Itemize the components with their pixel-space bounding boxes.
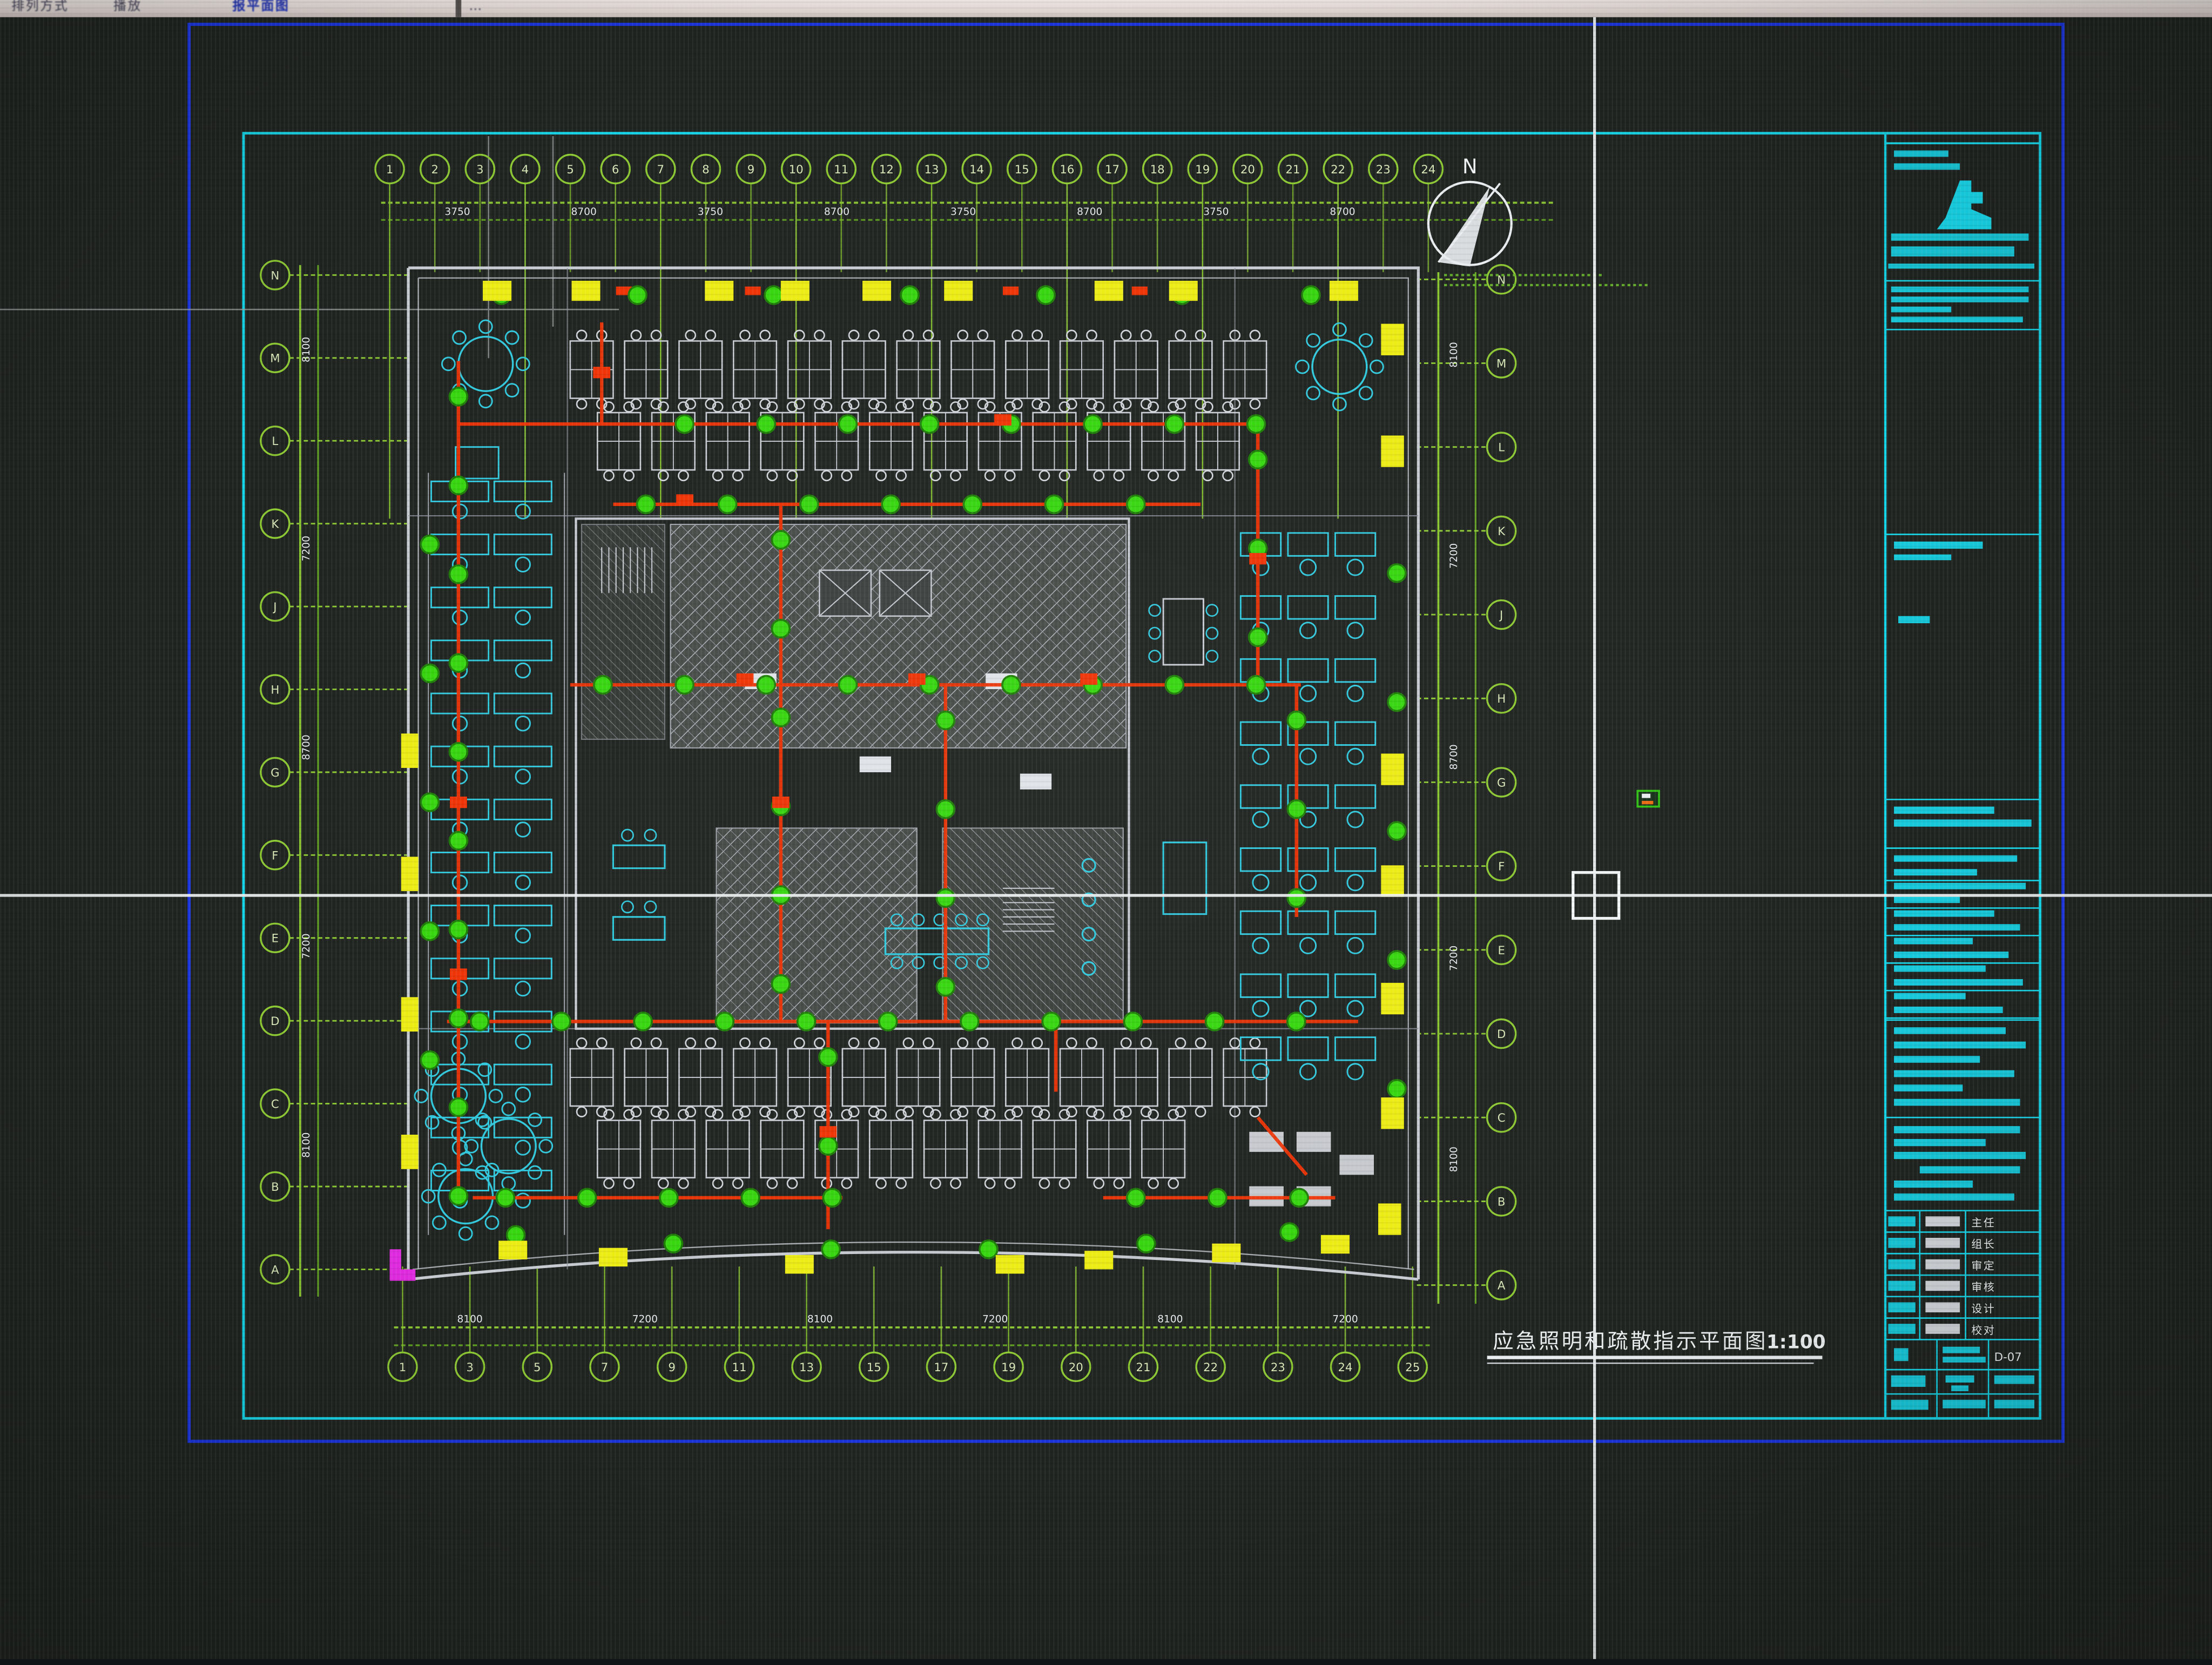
svg-text:5: 5 [567, 163, 574, 177]
svg-text:D: D [271, 1015, 279, 1028]
toolbar-item-play[interactable]: 播放 [113, 0, 142, 16]
svg-text:9: 9 [747, 163, 755, 177]
svg-text:7: 7 [601, 1361, 609, 1374]
svg-text:8100: 8100 [1157, 1314, 1183, 1325]
svg-text:8100: 8100 [1448, 1147, 1460, 1172]
svg-text:22: 22 [1203, 1361, 1218, 1374]
signature-role-label: 校对 [1971, 1324, 1995, 1337]
floating-block-symbol [1637, 791, 1659, 806]
svg-text:3750: 3750 [950, 206, 976, 218]
svg-text:14: 14 [969, 163, 984, 177]
drawing-title-text: 应急照明和疏散指示平面图 [1493, 1329, 1768, 1353]
svg-text:N: N [271, 269, 279, 282]
svg-text:7200: 7200 [1448, 543, 1460, 569]
signature-role-label: 设计 [1971, 1303, 1995, 1315]
svg-text:8: 8 [702, 163, 710, 177]
svg-text:23: 23 [1376, 163, 1391, 177]
svg-text:9: 9 [668, 1361, 676, 1374]
svg-text:8100: 8100 [301, 337, 312, 362]
svg-text:7200: 7200 [1332, 1314, 1358, 1325]
svg-text:B: B [271, 1181, 279, 1194]
drawing-title: 应急照明和疏散指示平面图 1:100 [1487, 1329, 1826, 1363]
svg-text:A: A [1498, 1279, 1506, 1293]
north-label: N [1462, 155, 1478, 178]
svg-text:4: 4 [522, 163, 529, 177]
window-edge-notch [456, 0, 462, 17]
svg-text:5: 5 [534, 1361, 541, 1374]
svg-text:3: 3 [466, 1361, 474, 1374]
svg-text:24: 24 [1338, 1361, 1353, 1374]
toolbar-selected-file[interactable]: 报平面图 [232, 0, 289, 16]
toolbar-item-arrange[interactable]: 排列方式 [11, 0, 69, 16]
svg-text:24: 24 [1421, 163, 1435, 177]
svg-text:H: H [1497, 692, 1506, 706]
svg-text:B: B [1498, 1195, 1506, 1209]
svg-text:7: 7 [657, 163, 665, 177]
title-block: 主任组长审定审核设计校对D-07 [1885, 143, 2040, 1418]
svg-text:8700: 8700 [824, 206, 849, 218]
svg-text:8100: 8100 [1448, 342, 1460, 367]
floor-plan-drawing: 1234567891011121314151617181920212223243… [0, 17, 2212, 1659]
signature-role-label: 主任 [1971, 1217, 1995, 1229]
signature-role-label: 审定 [1971, 1259, 1995, 1272]
svg-text:11: 11 [834, 163, 848, 177]
svg-text:6: 6 [612, 163, 619, 177]
svg-text:8700: 8700 [1330, 206, 1355, 218]
svg-text:12: 12 [879, 163, 894, 177]
svg-text:3: 3 [476, 163, 484, 177]
svg-text:E: E [272, 932, 279, 946]
svg-text:8700: 8700 [1077, 206, 1102, 218]
cad-application-screen: 排列方式 播放 报平面图 … [0, 0, 2212, 1659]
svg-text:3750: 3750 [698, 206, 723, 218]
svg-text:23: 23 [1271, 1361, 1285, 1374]
svg-text:G: G [271, 766, 279, 780]
svg-text:7200: 7200 [301, 933, 312, 959]
crosshair-pickbox[interactable] [1571, 871, 1620, 920]
svg-text:25: 25 [1405, 1361, 1420, 1374]
svg-text:C: C [1498, 1111, 1506, 1125]
svg-text:8100: 8100 [301, 1133, 312, 1158]
svg-text:M: M [1496, 357, 1506, 370]
svg-text:H: H [271, 683, 279, 697]
svg-text:20: 20 [1240, 163, 1255, 177]
svg-text:8100: 8100 [457, 1314, 483, 1325]
svg-text:K: K [271, 518, 279, 531]
svg-text:15: 15 [867, 1361, 881, 1374]
svg-text:F: F [1498, 860, 1505, 874]
svg-text:3750: 3750 [444, 206, 470, 218]
svg-text:7200: 7200 [982, 1314, 1008, 1325]
svg-text:7200: 7200 [632, 1314, 658, 1325]
drawing-number: D-07 [1994, 1351, 2022, 1364]
svg-text:19: 19 [1001, 1361, 1016, 1374]
svg-text:K: K [1498, 525, 1506, 538]
svg-text:7200: 7200 [1448, 946, 1460, 971]
svg-text:8700: 8700 [1448, 744, 1460, 770]
svg-text:8700: 8700 [301, 734, 312, 760]
svg-text:C: C [271, 1098, 279, 1111]
svg-text:22: 22 [1331, 163, 1345, 177]
svg-text:M: M [270, 352, 280, 366]
svg-text:11: 11 [732, 1361, 746, 1374]
svg-text:J: J [272, 601, 276, 614]
svg-text:3750: 3750 [1203, 206, 1229, 218]
central-core [576, 518, 1129, 1028]
svg-text:D: D [1497, 1028, 1506, 1041]
svg-text:1: 1 [386, 163, 394, 177]
svg-text:21: 21 [1136, 1361, 1150, 1374]
svg-text:L: L [272, 435, 278, 448]
svg-text:16: 16 [1060, 163, 1074, 177]
svg-text:L: L [1498, 441, 1505, 455]
svg-text:8100: 8100 [807, 1314, 833, 1325]
svg-text:15: 15 [1015, 163, 1029, 177]
drawing-scale: 1:100 [1766, 1331, 1826, 1353]
signature-role-label: 审核 [1971, 1281, 1995, 1293]
svg-text:20: 20 [1069, 1361, 1083, 1374]
magenta-corner-block [390, 1249, 416, 1280]
cyan-furniture [415, 320, 1383, 1240]
svg-text:21: 21 [1286, 163, 1300, 177]
svg-text:17: 17 [934, 1361, 948, 1374]
svg-text:E: E [1498, 944, 1505, 958]
svg-text:13: 13 [925, 163, 939, 177]
svg-text:1: 1 [399, 1361, 407, 1374]
toolbar-more-marks: … [469, 0, 483, 16]
crosshair-horizontal [0, 894, 2212, 896]
svg-text:17: 17 [1105, 163, 1120, 177]
svg-text:10: 10 [789, 163, 804, 177]
signature-role-label: 组长 [1971, 1238, 1995, 1251]
svg-text:J: J [1499, 609, 1503, 622]
building-plan [390, 268, 1419, 1281]
svg-text:A: A [271, 1263, 279, 1277]
svg-text:7200: 7200 [301, 536, 312, 561]
svg-text:F: F [272, 849, 278, 862]
photographed-monitor: 排列方式 播放 报平面图 … [0, 0, 2212, 1659]
cad-drawing-canvas[interactable]: 1234567891011121314151617181920212223243… [0, 17, 2212, 1659]
svg-text:G: G [1497, 776, 1506, 790]
svg-text:19: 19 [1195, 163, 1210, 177]
svg-text:2: 2 [431, 163, 439, 177]
crosshair-vertical [1594, 17, 1596, 1659]
svg-text:18: 18 [1150, 163, 1165, 177]
background-window-toolbar: 排列方式 播放 报平面图 … [0, 0, 2212, 17]
company-logo [1937, 180, 1992, 229]
svg-text:13: 13 [799, 1361, 814, 1374]
svg-text:8700: 8700 [571, 206, 597, 218]
